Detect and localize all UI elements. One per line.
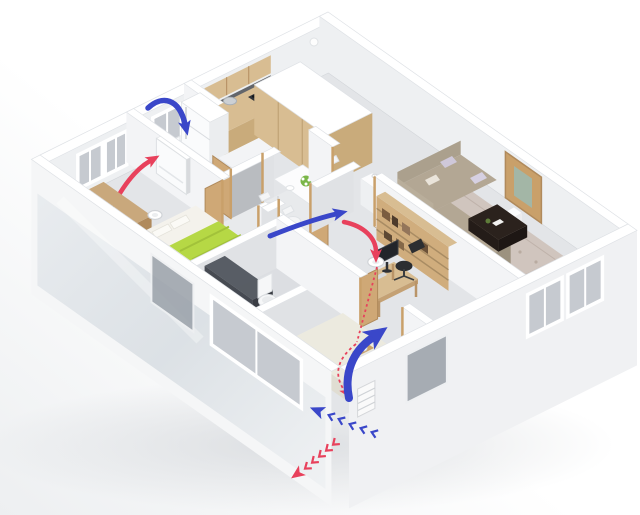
floorplan-svg: [0, 0, 640, 515]
floorplan-scene: [0, 0, 640, 515]
ceiling-extract-valve: [148, 211, 162, 220]
study-extract-valve: [368, 257, 384, 267]
sink: [224, 97, 237, 105]
open-door-leaf: [360, 269, 377, 328]
plant: [486, 219, 491, 224]
smoke-detector: [310, 38, 318, 46]
plate: [286, 186, 294, 191]
